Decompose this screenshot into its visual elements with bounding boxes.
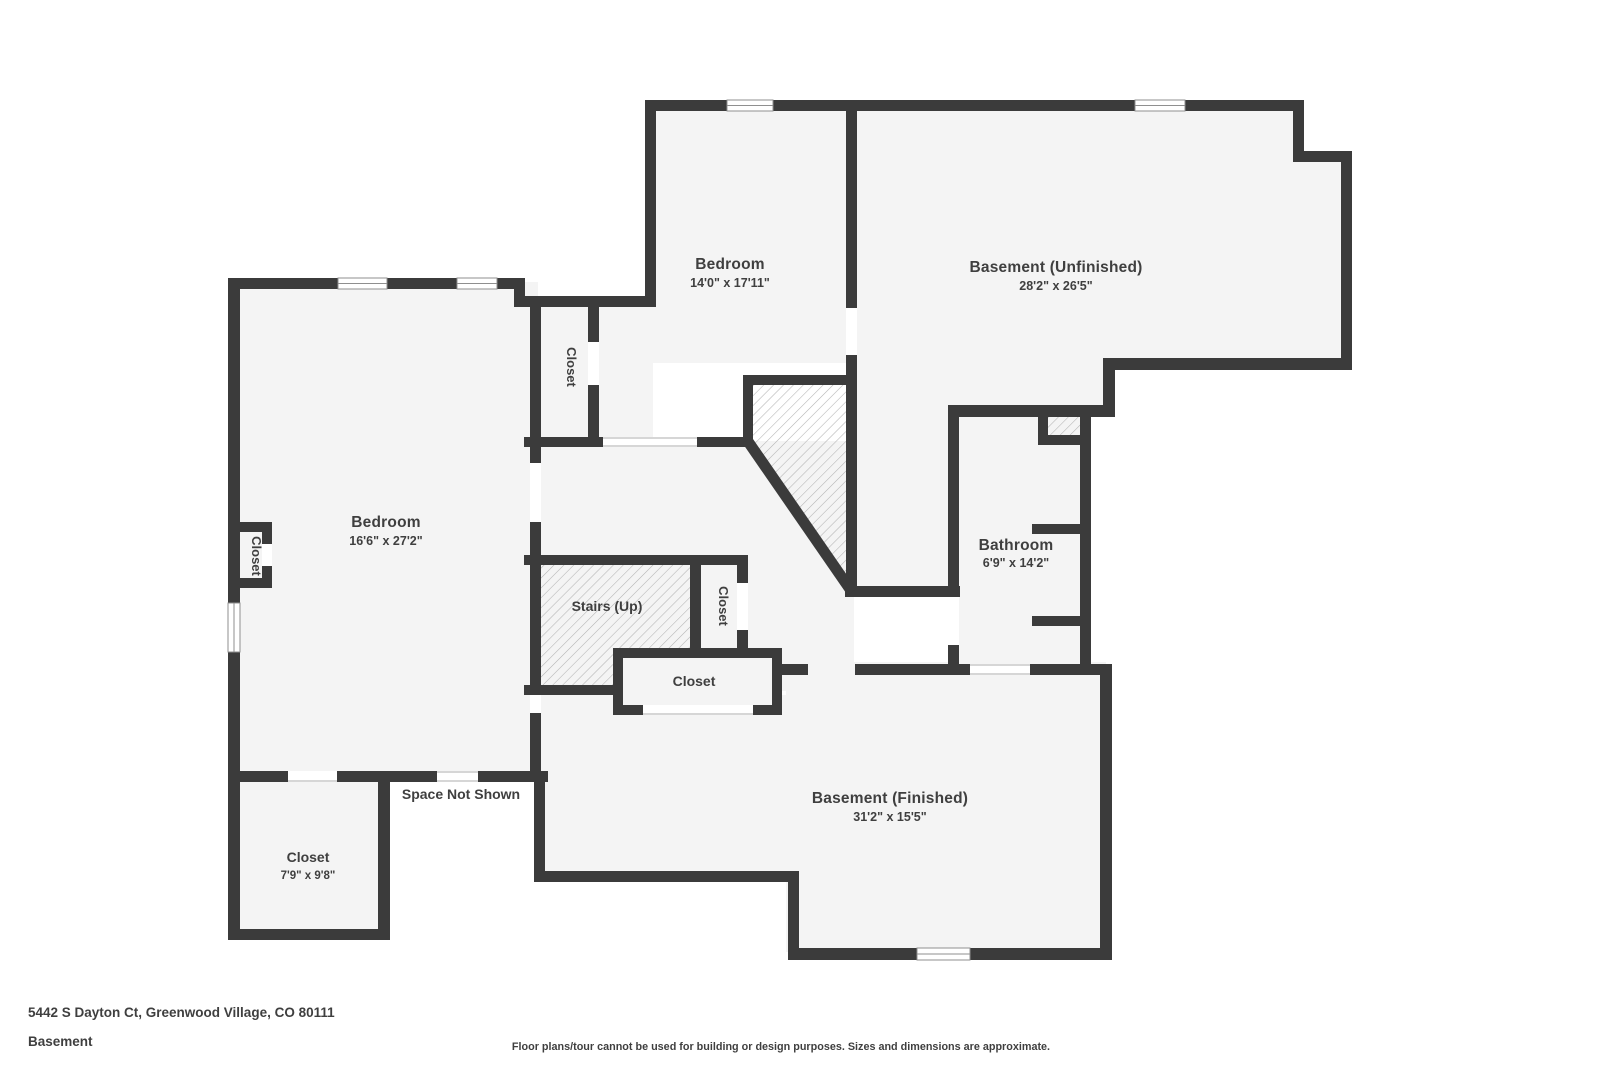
window [228,603,240,652]
footer-disclaimer: Floor plans/tour cannot be used for buil… [512,1041,1050,1053]
label-basement-unfinished-dims: 28'2" x 26'5" [1019,279,1092,293]
label-basement-finished-name: Basement (Finished) [812,790,968,807]
window [457,278,497,289]
label-stairs: Stairs (Up) [572,598,643,614]
label-bedroom-left-name: Bedroom [351,514,420,531]
label-bedroom-top-name: Bedroom [695,256,764,273]
chase-hatch [1048,417,1080,435]
opening [603,437,697,447]
label-bedroom-top-dims: 14'0" x 17'11" [690,276,770,290]
window [1135,100,1185,111]
label-closet-nook: Closet [249,536,264,576]
footer-level: Basement [28,1034,93,1049]
window [917,948,970,960]
floor-plan-page: Bedroom 14'0" x 17'11" Basement (Unfinis… [0,0,1600,1067]
label-basement-finished-dims: 31'2" x 15'5" [853,810,926,824]
opening [437,771,478,782]
opening [970,664,1030,675]
floor-plan-canvas: Bedroom 14'0" x 17'11" Basement (Unfinis… [0,0,1600,1067]
label-closet-bedroom-top: Closet [564,347,579,387]
label-closet-bottom-left-name: Closet [287,849,330,865]
label-closet-hall-bottom: Closet [673,673,716,689]
window [727,100,773,111]
label-space-not-shown: Space Not Shown [402,786,520,802]
footer-address: 5442 S Dayton Ct, Greenwood Village, CO … [28,1005,335,1020]
opening [288,771,337,782]
label-bedroom-left-dims: 16'6" x 27'2" [349,534,422,548]
label-bathroom-dims: 6'9" x 14'2" [983,556,1050,570]
label-closet-bottom-left-dims: 7'9" x 9'8" [281,870,336,882]
opening [643,705,753,715]
footer: 5442 S Dayton Ct, Greenwood Village, CO … [28,1005,1050,1053]
label-basement-unfinished-name: Basement (Unfinished) [970,259,1143,276]
window [338,278,387,289]
label-bathroom-name: Bathroom [979,537,1054,554]
label-closet-hall: Closet [716,586,731,626]
